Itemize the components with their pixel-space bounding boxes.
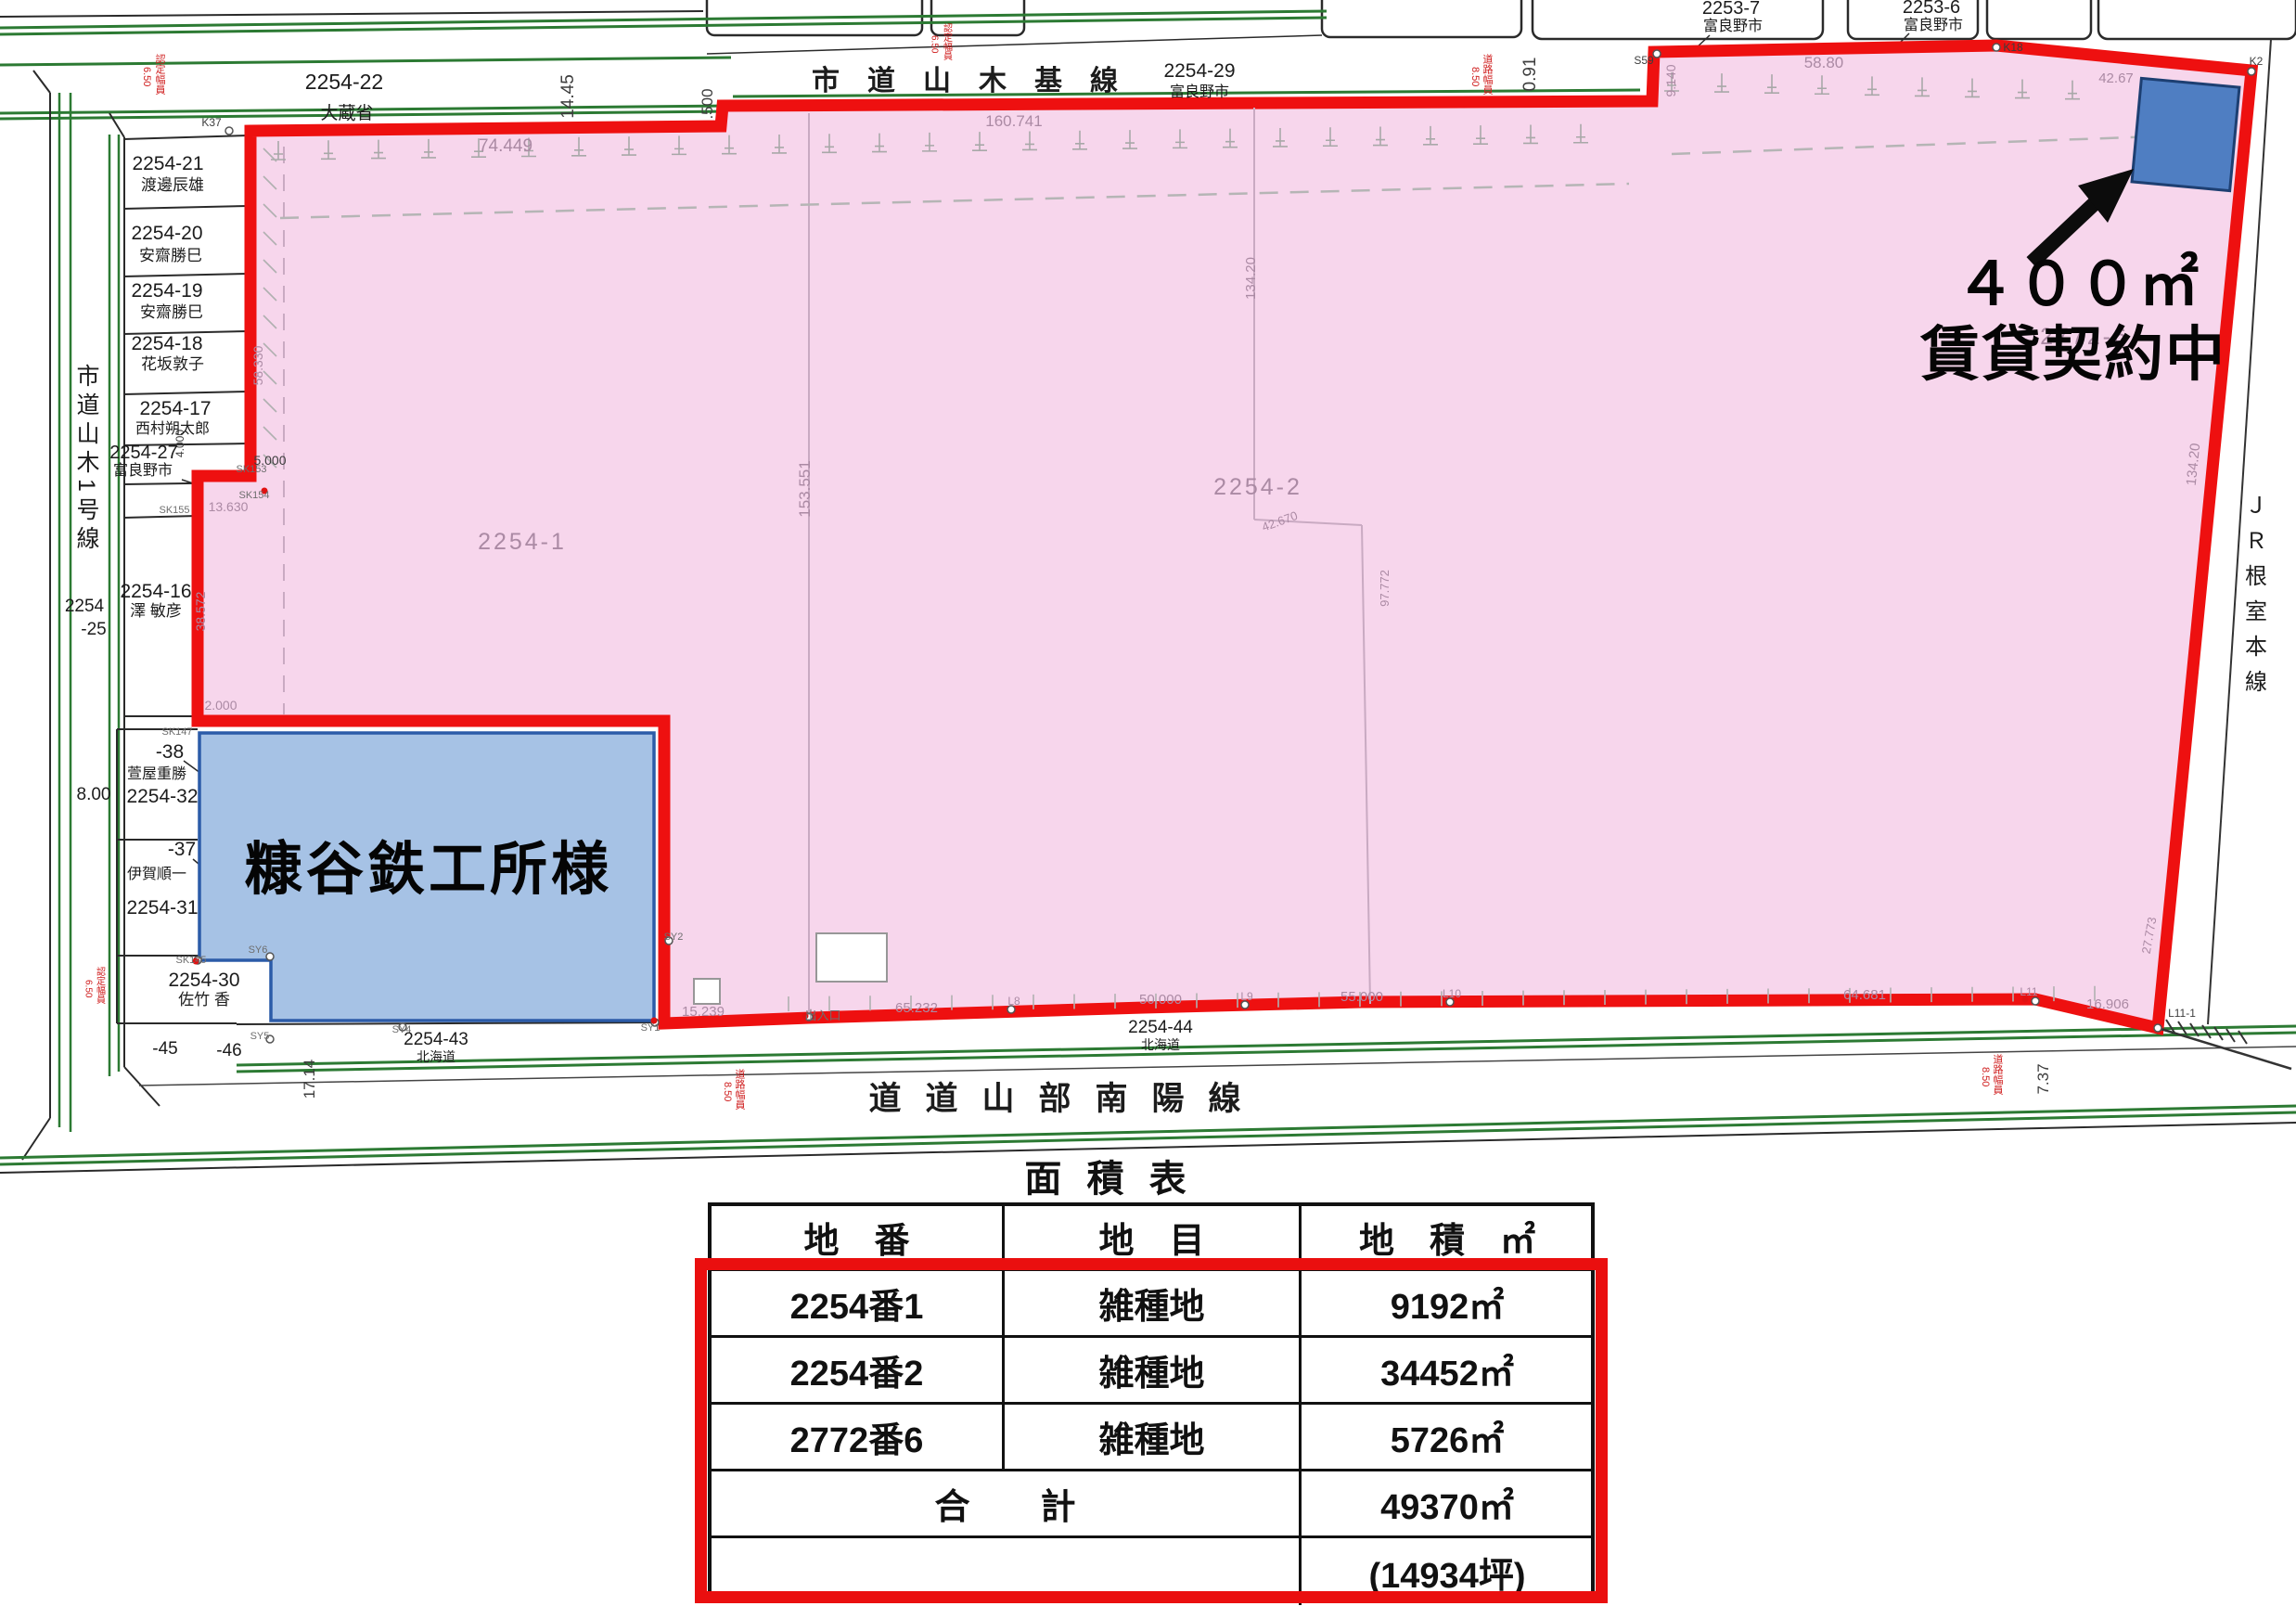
road-bottom-name: 道道山部南陽線	[868, 1081, 1264, 1117]
table-total-value: 49370㎡	[1302, 1471, 1593, 1538]
meas-58-80: 58.80	[1804, 54, 1844, 71]
marker-sy2: SY2	[664, 931, 684, 943]
marker-l11-1: L11-1	[2168, 1007, 2196, 1020]
marker-sk145: SK145	[175, 955, 206, 966]
parcel-2253-6-owner: 富良野市	[1904, 17, 1963, 33]
leased-area-rect[interactable]	[2132, 78, 2239, 190]
meas-7-37: 7.37	[2034, 1063, 2052, 1094]
parcel-2253-6-no: 2253-6	[1903, 0, 1960, 18]
parcel-2254-32-no: 2254-32	[126, 786, 198, 807]
meas-134-20: 134.20	[1243, 257, 1259, 300]
parcel-2254-1-no: 2254-1	[478, 529, 567, 555]
rail-hatch-ticks	[2166, 1020, 2247, 1044]
table-cell: 雑種地	[1005, 1338, 1302, 1405]
red-width-note-label: 認定幅員	[95, 966, 106, 1005]
area-table-header-chimoku: 地 目	[1005, 1206, 1302, 1271]
parcel-2254-31-sub: -37	[168, 839, 196, 860]
parcel-2254-25-no2: -25	[81, 620, 106, 639]
red-width-note-label: 道路幅員	[1992, 1053, 2004, 1096]
meas-38-572: 38.572	[193, 591, 208, 631]
meas-13-630: 13.630	[209, 499, 249, 514]
meas-500: .500	[699, 88, 716, 119]
parcel-2254-21-owner: 渡邊辰雄	[141, 176, 204, 194]
parcel-2254-20-no: 2254-20	[131, 223, 202, 244]
meas-15-239: 15.239	[682, 1004, 725, 1020]
table-total-label: 合 計	[712, 1471, 1302, 1538]
parcel-2254-20-owner: 安齋勝巳	[139, 247, 202, 264]
parcel-2254-32-owner: 萱屋重勝	[127, 765, 186, 782]
parcel-2254-18-owner: 花坂敦子	[141, 355, 204, 373]
meas-160-741: 160.741	[985, 112, 1042, 130]
table-cell: 雑種地	[1005, 1271, 1302, 1338]
meas-74-449: 74.449	[479, 136, 532, 156]
marker-l10: L10	[1443, 987, 1461, 1000]
parcel-2254-29-no: 2254-29	[1163, 60, 1235, 82]
area-table: 地 番 地 目 地 積 ㎡ 2254番1 雑種地 9192㎡ 2254番2 雑種…	[708, 1202, 1595, 1601]
parcel-2254-22-no: 2254-22	[305, 70, 383, 94]
parcel-2254-31-owner: 伊賀順一	[127, 866, 186, 882]
parcel-2254-30-owner: 佐竹 香	[178, 991, 230, 1009]
parcel-2254-16-no: 2254-16	[120, 581, 191, 602]
parcel-2254-43-no: 2254-43	[404, 1030, 468, 1049]
parcel-2254-17-no: 2254-17	[139, 398, 211, 419]
red-width-note-value: 8.50	[1980, 1067, 1991, 1086]
parcel-2254-44-owner: 北海道	[1141, 1037, 1180, 1052]
marker-sy6: SY6	[249, 944, 268, 956]
cadastral-map-page: 市道山木基線2254-29富良野市2254-22大蔵省14.45.5000.91…	[0, 0, 2296, 1606]
parcel-2254-18-no: 2254-18	[131, 333, 202, 354]
meas-14-45: 14.45	[558, 74, 578, 119]
meas-2-000: 2.000	[204, 698, 237, 713]
table-cell: 雑種地	[1005, 1405, 1302, 1471]
red-width-note-value: 6.50	[930, 35, 940, 54]
rail-name: ＪＲ根室本線	[2241, 494, 2267, 705]
parcel-2254-31-no: 2254-31	[126, 897, 198, 919]
table-cell: 5726㎡	[1302, 1405, 1593, 1471]
table-empty-cell	[712, 1538, 1302, 1605]
meas-16-906: 16.906	[2086, 996, 2129, 1012]
marker-l9: L9	[1240, 990, 1253, 1003]
road-top-name: 市道山木基線	[812, 65, 1146, 96]
marker-k18: K18	[2003, 41, 2023, 54]
road-left-name: 市道山木1号線	[73, 364, 100, 555]
marker-sk155: SK155	[159, 505, 189, 516]
meas-42-67: 42.67	[2098, 71, 2134, 86]
parcel-2254-19-no: 2254-19	[131, 280, 202, 302]
meas-55-000: 55.000	[1340, 989, 1383, 1005]
marker-sk147: SK147	[161, 726, 192, 738]
parcel-2254-46-sub: -46	[216, 1041, 241, 1060]
table-cell: 2254番2	[712, 1338, 1005, 1405]
parcel-2254-30-no: 2254-30	[168, 970, 239, 991]
parcel-2254-27-no: 2254-27	[109, 443, 177, 463]
parcel-2254-2-no: 2254-2	[1213, 474, 1302, 500]
marker-s59: S59	[1634, 54, 1654, 67]
marker-sy1: SY1	[641, 1022, 661, 1034]
table-cell: 34452㎡	[1302, 1338, 1593, 1405]
meas-58-330: 58.330	[250, 345, 265, 385]
meas-153-551: 153.551	[796, 460, 814, 517]
red-width-note-value: 8.50	[722, 1082, 733, 1101]
red-width-note-value: 6.50	[141, 67, 152, 86]
parcel-2254-19-owner: 安齋勝巳	[140, 303, 203, 321]
meas-50-000: 50.000	[1139, 992, 1182, 1008]
lease-area-label: ４００㎡	[1956, 251, 2200, 317]
parcel-2254-29-owner: 富良野市	[1170, 84, 1229, 100]
lease-status-label: 賃貸契約中	[1919, 321, 2226, 388]
parcel-2254-45-sub: -45	[152, 1039, 177, 1059]
parcel-2254-43-owner: 北海道	[417, 1049, 455, 1064]
meas-17-14: 17.14	[301, 1060, 318, 1099]
meas-8-00: 8.00	[77, 785, 111, 804]
meas-65-232: 65.232	[895, 1000, 938, 1016]
area-table-header-chiseki: 地 積 ㎡	[1302, 1206, 1593, 1271]
parcel-2254-27-owner: 富良野市	[113, 462, 173, 479]
red-width-note-value: 8.50	[1469, 67, 1481, 86]
table-total-tsubo: (14934坪)	[1302, 1538, 1593, 1605]
meas-9-140: 9.140	[1663, 64, 1678, 96]
red-width-note-value: 6.50	[83, 980, 94, 998]
marker-sk154: SK154	[238, 490, 269, 501]
parcel-2253-7-owner: 富良野市	[1703, 18, 1763, 34]
label-entrance: 出入口	[804, 1009, 840, 1022]
parcel-2254-25-no1: 2254	[65, 597, 105, 616]
parcel-2254-32-sub: -38	[156, 741, 184, 763]
parcel-2254-44-no: 2254-44	[1128, 1018, 1193, 1037]
meas-97-772: 97.772	[1378, 570, 1392, 607]
marker-k37: K37	[201, 116, 222, 129]
area-table-title: 面 積 表	[991, 1149, 1227, 1209]
meas-0-91: 0.91	[1520, 58, 1540, 92]
parcel-2254-16-owner: 澤 敏彦	[130, 602, 182, 620]
marker-sy5: SY5	[250, 1031, 270, 1042]
red-width-note-label: 認定幅員	[154, 53, 166, 96]
parcel-2254-22-owner: 大蔵省	[320, 103, 373, 123]
marker-k2: K2	[2250, 55, 2264, 68]
meas-64-681: 64.681	[1843, 987, 1886, 1003]
red-width-note-label: 認定幅員	[942, 22, 953, 61]
marker-sk153: SK153	[236, 464, 266, 475]
parcel-2254-21-no: 2254-21	[132, 153, 203, 174]
marker-l11: L11	[2020, 985, 2037, 998]
table-cell: 9192㎡	[1302, 1271, 1593, 1338]
parcel-2254-17-owner: 西村朔太郎	[135, 420, 210, 437]
table-cell: 2772番6	[712, 1405, 1005, 1471]
red-width-note-label: 道路幅員	[1481, 53, 1494, 96]
marker-l8: L8	[1007, 995, 1020, 1008]
red-width-note-label: 道路幅員	[734, 1068, 746, 1111]
parcel-2253-7-no: 2253-7	[1702, 0, 1760, 19]
table-cell: 2254番1	[712, 1271, 1005, 1338]
area-table-header-chiban: 地 番	[712, 1206, 1005, 1271]
tenant-building-label: 糠谷鉄工所様	[245, 837, 612, 902]
